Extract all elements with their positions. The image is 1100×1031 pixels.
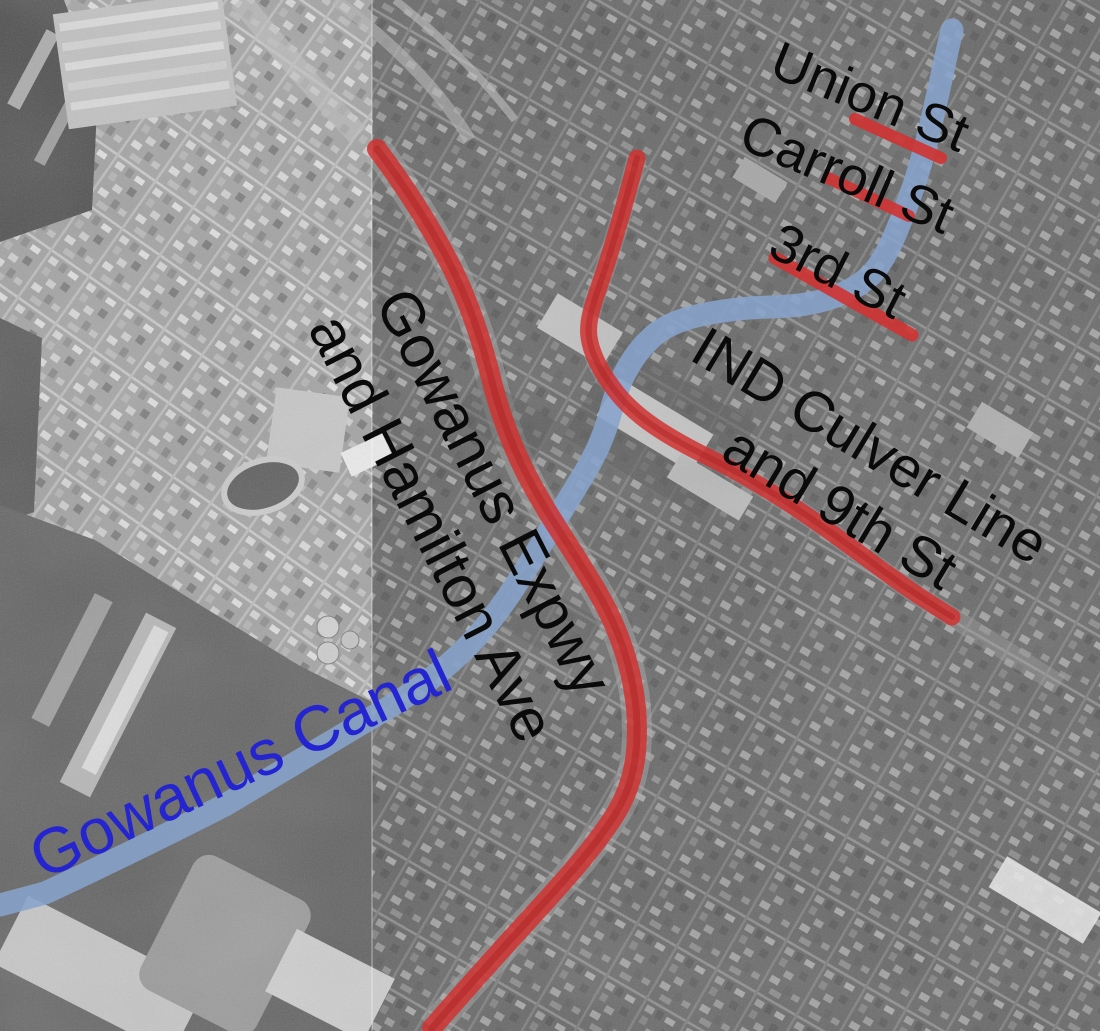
- gowanus-area-aerial-map: Union St Carroll St 3rd St IND Culver Li…: [0, 0, 1100, 1031]
- annotated-aerial-map: Union St Carroll St 3rd St IND Culver Li…: [0, 0, 1100, 1031]
